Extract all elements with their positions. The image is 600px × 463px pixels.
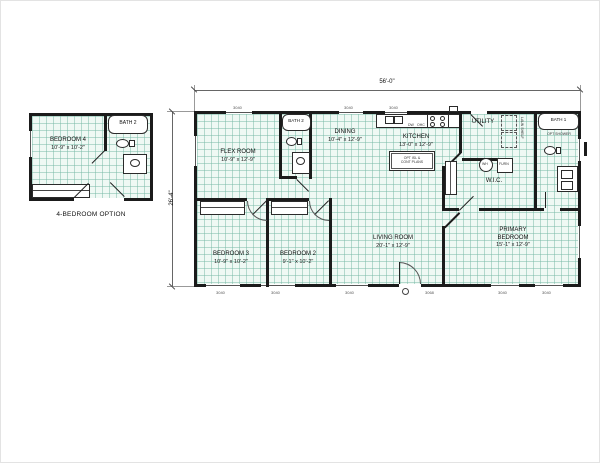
- burner: [430, 122, 435, 127]
- toilet-tank: [297, 138, 302, 145]
- room-name: BEDROOM 3: [201, 251, 261, 259]
- window-size-label: 3040: [542, 290, 551, 295]
- inset-wall-bottom-right: [124, 198, 153, 201]
- room-name-line2: BEDROOM: [483, 235, 543, 243]
- dryer: [501, 132, 517, 148]
- window: [336, 284, 368, 287]
- toilet: [286, 137, 297, 146]
- pantry-cabinet: [445, 161, 457, 195]
- window: [226, 111, 252, 114]
- inset-wall-right: [150, 113, 153, 201]
- window-size-label: 3040: [233, 105, 242, 110]
- window-size-label: 3040: [271, 290, 280, 295]
- wall-primary-top-a: [442, 208, 459, 211]
- room-name: DINING: [315, 129, 375, 137]
- dishwasher-label: DW: [408, 123, 414, 127]
- window-marker: [584, 142, 587, 156]
- window: [339, 111, 363, 114]
- room-name: KITCHEN: [386, 134, 446, 142]
- wall-primary-top-b: [479, 208, 544, 211]
- room-size: 10'-9" x 10'-2": [36, 145, 100, 152]
- front-door-opening: [399, 284, 421, 287]
- window-size-label: 3040: [344, 105, 353, 110]
- burner: [440, 122, 445, 127]
- floorplan-canvas: 56'-0" 26'-4" BATH 2 BEDROOM 4 10'-9" x …: [0, 0, 600, 463]
- flex-room-label: FLEX ROOM 10'-9" x 12'-9": [206, 149, 270, 163]
- bed3-closet-rod: [201, 207, 244, 208]
- window-size-label: 3040: [345, 290, 354, 295]
- washer: [501, 115, 517, 131]
- toilet: [544, 146, 556, 155]
- room-name: LIVING ROOM: [361, 235, 425, 243]
- kitchen-sink: [394, 116, 403, 124]
- utility-label: UTILITY: [465, 119, 501, 127]
- island-note-line2: CONT PLANS: [391, 160, 433, 164]
- bed3-closet: [200, 201, 245, 215]
- wall-living-primary: [442, 226, 445, 287]
- window: [535, 284, 563, 287]
- inset-caption: 4-BEDROOM OPTION: [31, 211, 151, 218]
- range-hood-vent: [449, 106, 458, 112]
- overall-height-dimension: 26'-4": [169, 174, 175, 222]
- wall-utility-bath1: [534, 111, 537, 211]
- vanity-sink: [561, 170, 573, 179]
- main-wall-bottom: [194, 284, 581, 287]
- kitchen-sink: [385, 116, 394, 124]
- door-size-label: 3068: [425, 290, 434, 295]
- room-name: FLEX ROOM: [206, 149, 270, 157]
- inset-window-left: [29, 131, 32, 157]
- bed2-closet: [271, 201, 308, 215]
- wall-bed2-living: [329, 198, 332, 287]
- window: [206, 284, 240, 287]
- room-name: BEDROOM 4: [36, 137, 100, 145]
- utility-back-door-opening: [471, 111, 487, 114]
- optional-shower-note: OPT SHOWER: [541, 132, 577, 136]
- toilet-tank: [129, 140, 135, 147]
- room-size: 15'-1" x 12'-9": [483, 242, 543, 249]
- burner: [440, 116, 445, 121]
- room-size: 9'-1" x 10'-2": [268, 259, 328, 266]
- window: [578, 139, 581, 161]
- inset-bath2-label: BATH 2: [108, 120, 148, 126]
- bath2-label: BATH 2: [281, 118, 311, 124]
- wall-bath2-bottom: [279, 176, 297, 179]
- window: [578, 226, 581, 258]
- vanity-sink: [561, 181, 573, 190]
- inset-bath-wall: [104, 113, 107, 151]
- water-heater-label: WH: [482, 162, 488, 166]
- bedroom2-label: BEDROOM 2 9'-1" x 10'-2": [268, 251, 328, 265]
- vanity-sink: [130, 159, 140, 167]
- kitchen-label: KITCHEN 13'-0" x 12'-9": [386, 134, 446, 148]
- room-size: 10'-9" x 12'-9": [206, 157, 270, 164]
- wall-kitchen-utility: [459, 111, 462, 153]
- toilet: [116, 139, 129, 148]
- entry-marker-icon: [402, 288, 409, 295]
- pantry-shelf-line: [450, 162, 451, 194]
- wic-label: W.I.C.: [479, 178, 509, 186]
- inset-wall-bottom-left: [29, 198, 74, 201]
- bedroom3-label: BEDROOM 3 10'-9" x 10'-2": [201, 251, 261, 265]
- room-size: 13'-0" x 12'-9": [386, 142, 446, 149]
- window-size-label: 3040: [389, 105, 398, 110]
- window-size-label: 3040: [216, 290, 225, 295]
- island-note: OPT ISL & CONT PLANS: [391, 156, 433, 164]
- inset-bedroom4-label: BEDROOM 4 10'-9" x 10'-2": [36, 137, 100, 151]
- furnace-label: FURN: [499, 162, 509, 166]
- room-size: 10'-9" x 10'-2": [201, 259, 261, 266]
- overhead-cabinet-label: OHC: [417, 123, 425, 127]
- bath1-label: BATH 1: [538, 117, 579, 123]
- room-name: BEDROOM 2: [268, 251, 328, 259]
- burner: [430, 116, 435, 121]
- window: [194, 136, 197, 166]
- overall-width-dimension: 56'-0": [357, 79, 417, 85]
- toilet-tank: [556, 147, 561, 154]
- bath1-door-leaf: [545, 192, 546, 208]
- front-door-leaf: [399, 262, 400, 284]
- bed2-closet-rod: [272, 207, 307, 208]
- dimension-line-top: [194, 90, 581, 91]
- window: [491, 284, 519, 287]
- room-name-line1: PRIMARY: [483, 227, 543, 235]
- wall-primary-top-c: [560, 208, 581, 211]
- primary-bedroom-label: PRIMARY BEDROOM 15'-1" x 12'-9": [483, 227, 543, 249]
- dining-label: DINING 10'-4" x 12'-9": [315, 129, 375, 143]
- main-wall-right: [578, 111, 581, 287]
- room-size: 10'-4" x 12'-9": [315, 137, 375, 144]
- room-size: 20'-1" x 12'-9": [361, 243, 425, 250]
- laundry-shelf-label: LAUN SHELF: [520, 117, 524, 139]
- window-size-label: 3040: [498, 290, 507, 295]
- vanity-sink: [296, 157, 305, 165]
- living-room-label: LIVING ROOM 20'-1" x 12'-9": [361, 235, 425, 249]
